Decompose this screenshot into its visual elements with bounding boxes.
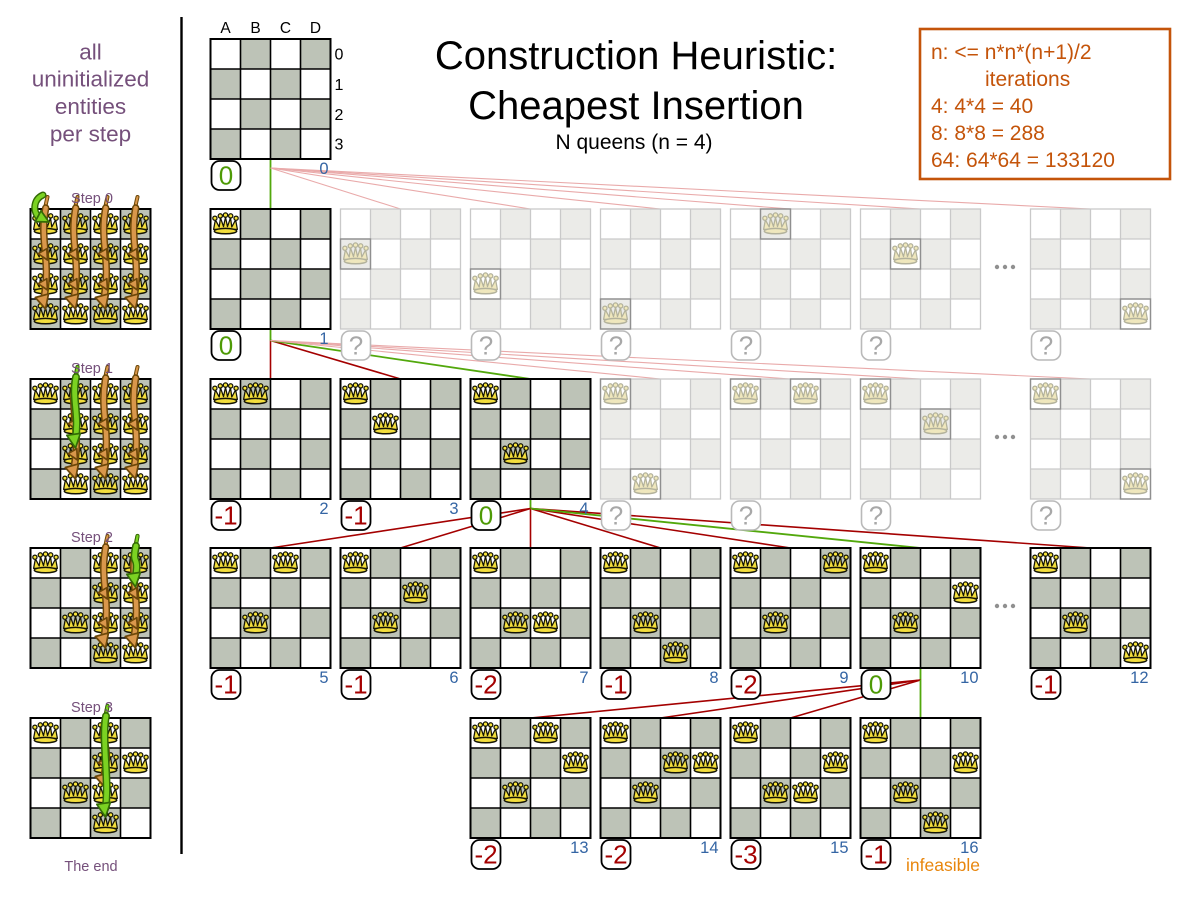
svg-text:all: all — [79, 39, 102, 64]
svg-text:Step 2: Step 2 — [71, 530, 113, 546]
svg-text:?: ? — [1039, 501, 1053, 531]
svg-text:?: ? — [479, 331, 493, 361]
svg-text:?: ? — [739, 501, 753, 531]
svg-text:C: C — [280, 20, 291, 37]
svg-text:entities: entities — [55, 94, 126, 119]
svg-text:B: B — [250, 20, 260, 37]
svg-text:7: 7 — [579, 669, 588, 687]
svg-text:3: 3 — [335, 137, 344, 154]
svg-text:-1: -1 — [1034, 670, 1057, 700]
svg-text:-2: -2 — [474, 840, 497, 870]
svg-text:n: <= n*n*(n+1)/2: n: <= n*n*(n+1)/2 — [931, 41, 1092, 64]
svg-text:4: 4 — [579, 500, 588, 518]
svg-text:-3: -3 — [734, 840, 757, 870]
svg-text:uninitialized: uninitialized — [32, 67, 150, 92]
svg-text:?: ? — [739, 331, 753, 361]
svg-text:?: ? — [869, 331, 883, 361]
svg-text:Step 1: Step 1 — [71, 361, 113, 377]
svg-text:The end: The end — [64, 859, 117, 875]
svg-text:-1: -1 — [344, 501, 367, 531]
svg-text:infeasible: infeasible — [906, 855, 980, 875]
svg-text:?: ? — [609, 501, 623, 531]
svg-text:9: 9 — [839, 669, 848, 687]
svg-text:?: ? — [869, 501, 883, 531]
svg-text:8: 8 — [709, 669, 718, 687]
svg-text:0: 0 — [219, 331, 233, 361]
svg-text:-1: -1 — [214, 501, 237, 531]
svg-text:64: 64*64 = 133120: 64: 64*64 = 133120 — [931, 149, 1115, 172]
svg-text:4: 4*4 = 40: 4: 4*4 = 40 — [931, 95, 1033, 118]
svg-text:iterations: iterations — [985, 68, 1070, 91]
svg-text:6: 6 — [449, 669, 458, 687]
svg-text:?: ? — [349, 331, 363, 361]
svg-text:8: 8*8 = 288: 8: 8*8 = 288 — [931, 122, 1045, 145]
svg-text:A: A — [220, 20, 231, 37]
svg-text:0: 0 — [319, 160, 328, 178]
svg-text:14: 14 — [700, 839, 718, 857]
svg-text:1: 1 — [319, 330, 328, 348]
svg-text:Step 3: Step 3 — [71, 700, 113, 716]
svg-text:0: 0 — [219, 161, 233, 191]
svg-text:?: ? — [1039, 331, 1053, 361]
svg-text:2: 2 — [319, 500, 328, 518]
svg-text:Cheapest Insertion: Cheapest Insertion — [468, 84, 804, 128]
svg-text:0: 0 — [335, 47, 344, 64]
svg-text:Construction Heuristic:: Construction Heuristic: — [435, 34, 837, 78]
svg-text:-1: -1 — [214, 670, 237, 700]
svg-text:5: 5 — [319, 669, 328, 687]
svg-text:3: 3 — [449, 500, 458, 518]
svg-text:-2: -2 — [604, 840, 627, 870]
svg-text:-1: -1 — [344, 670, 367, 700]
svg-text:10: 10 — [960, 669, 978, 687]
svg-text:-2: -2 — [474, 670, 497, 700]
svg-text:per step: per step — [50, 122, 131, 147]
svg-text:D: D — [310, 20, 321, 37]
svg-text:12: 12 — [1130, 669, 1148, 687]
svg-text:0: 0 — [479, 501, 493, 531]
svg-text:-1: -1 — [604, 670, 627, 700]
svg-text:0: 0 — [869, 670, 883, 700]
svg-text:Step 0: Step 0 — [71, 191, 113, 207]
svg-text:1: 1 — [335, 77, 344, 94]
svg-text:-1: -1 — [864, 840, 887, 870]
svg-text:?: ? — [609, 331, 623, 361]
svg-text:-2: -2 — [734, 670, 757, 700]
svg-text:13: 13 — [570, 839, 588, 857]
svg-text:2: 2 — [335, 107, 344, 124]
svg-text:15: 15 — [830, 839, 848, 857]
svg-text:N queens (n = 4): N queens (n = 4) — [555, 131, 712, 154]
